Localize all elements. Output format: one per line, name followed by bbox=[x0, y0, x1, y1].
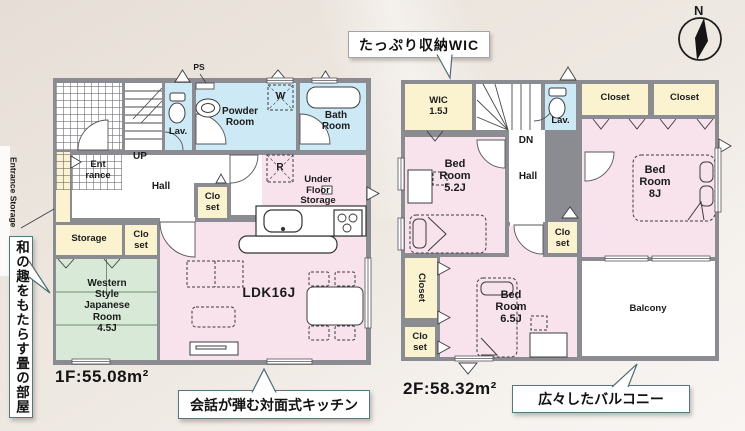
callout-tatami: 和の趣をもたらす畳の部屋 bbox=[9, 236, 33, 418]
closet-b bbox=[654, 84, 715, 115]
powder-room bbox=[196, 83, 296, 150]
lavatory-2f bbox=[545, 84, 576, 130]
closet-a bbox=[582, 84, 648, 115]
floor1-area-label: 1F:55.08m² bbox=[55, 367, 215, 387]
compass-north-label: N bbox=[694, 3, 703, 18]
callout-wic: たっぷり収納WIC bbox=[348, 31, 490, 58]
floor2-plan bbox=[401, 80, 719, 361]
ldk-upper bbox=[262, 155, 366, 360]
bedroom-8j bbox=[582, 119, 715, 257]
compass-icon bbox=[679, 18, 721, 60]
hall-closet bbox=[198, 187, 227, 218]
entrance-storage-label: Entrance Storage bbox=[6, 149, 19, 235]
bedroom-65j bbox=[440, 257, 577, 357]
entrance bbox=[72, 155, 122, 190]
corridor-1f bbox=[228, 155, 262, 215]
callout-balcony: 広々したバルコニー bbox=[512, 385, 690, 413]
ldk-lower bbox=[160, 222, 262, 360]
bedroom-52j bbox=[405, 137, 505, 253]
hall-closet-2f bbox=[548, 222, 577, 253]
closet-1f bbox=[125, 225, 157, 255]
hall-2f bbox=[509, 130, 545, 222]
callout-kitchen: 会話が弾む対面式キッチン bbox=[178, 390, 370, 419]
balcony bbox=[582, 261, 715, 356]
bath-room bbox=[300, 83, 366, 150]
entrance-storage-grid bbox=[56, 152, 70, 190]
staircase-1f bbox=[125, 83, 162, 150]
japanese-room bbox=[56, 259, 157, 360]
lavatory-1f bbox=[165, 83, 192, 150]
staircase-2f bbox=[476, 84, 541, 130]
bedroom-65j-entry bbox=[509, 226, 543, 257]
floor1-plan bbox=[53, 78, 371, 365]
ps-label: PS bbox=[189, 62, 209, 73]
porch bbox=[56, 83, 122, 150]
closet-small bbox=[405, 327, 435, 357]
storage bbox=[56, 225, 122, 255]
closet-side bbox=[405, 258, 437, 318]
floorplan-page: Entrance Storage PS Lav. Powder Room W B… bbox=[0, 0, 745, 431]
wic bbox=[405, 84, 472, 130]
